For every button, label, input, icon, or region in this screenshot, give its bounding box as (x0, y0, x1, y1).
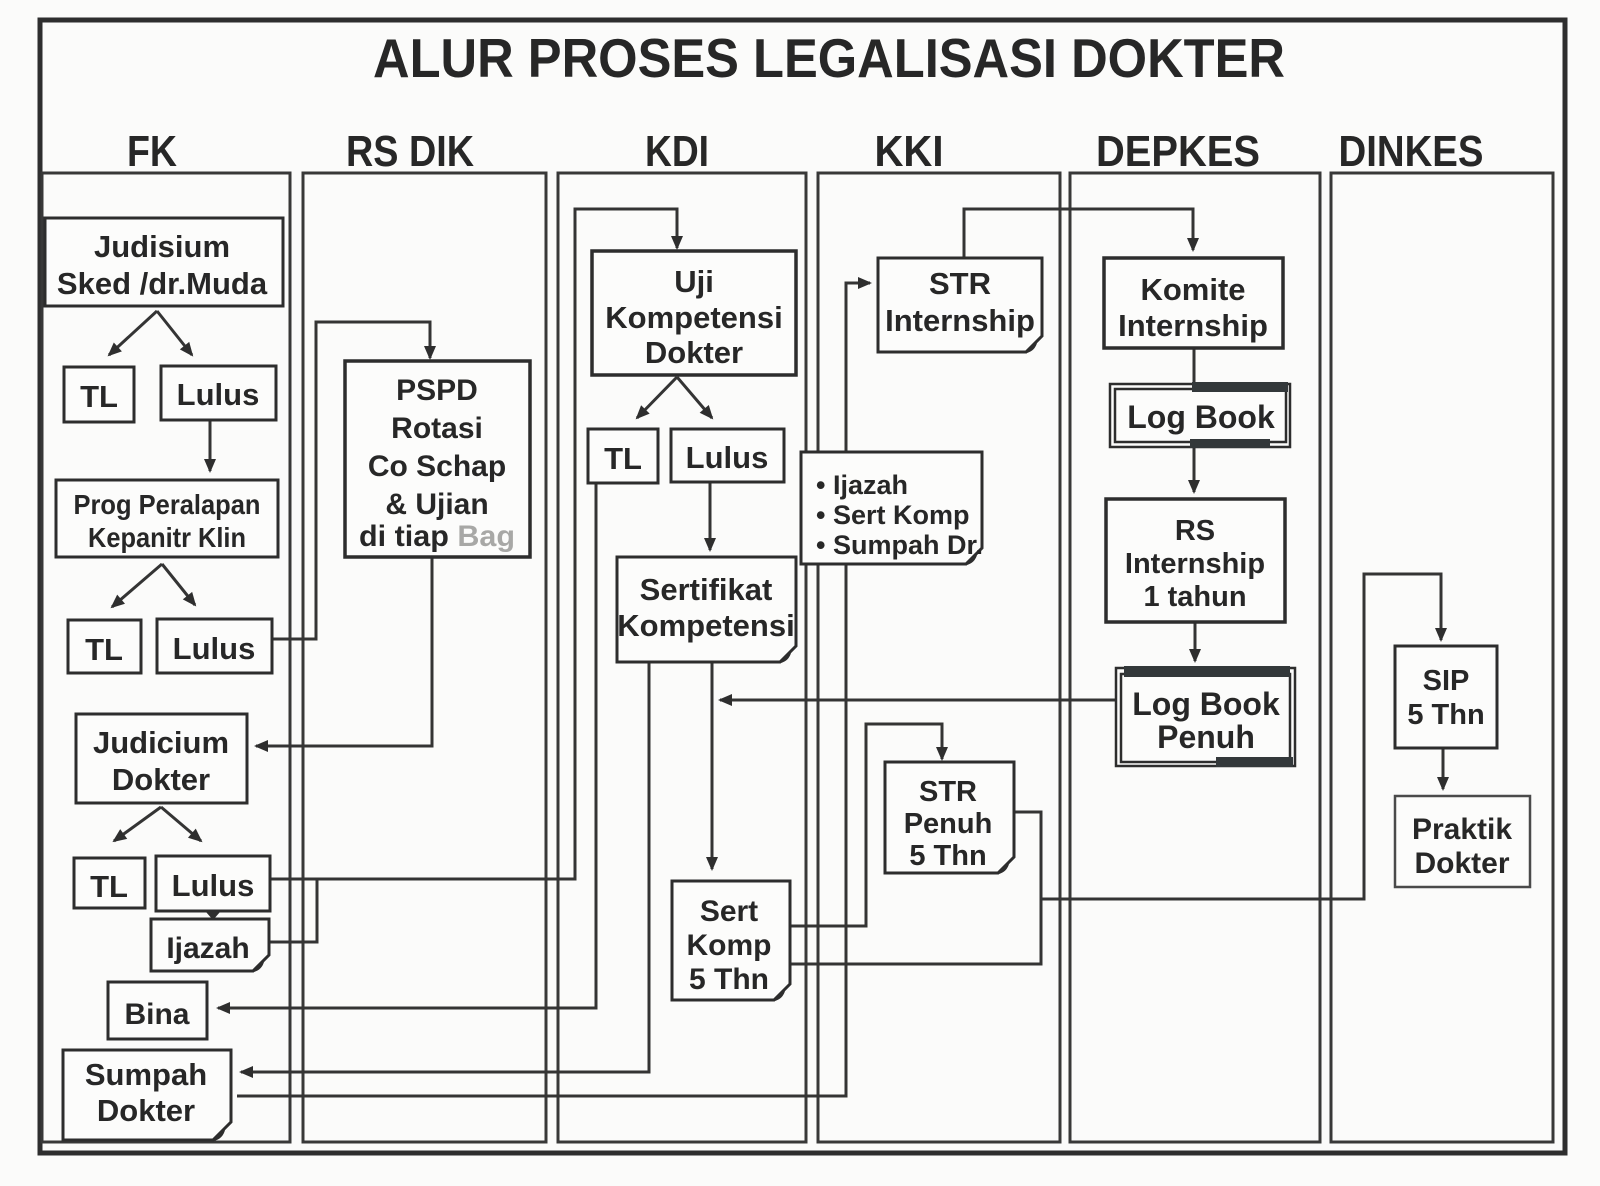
svg-text:Judisium: Judisium (94, 229, 230, 264)
svg-text:Prog Peralapan: Prog Peralapan (74, 489, 261, 520)
svg-text:Komite: Komite (1140, 272, 1245, 307)
svg-text:Kepanitr Klin: Kepanitr Klin (88, 522, 246, 553)
svg-text:Lulus: Lulus (686, 440, 769, 475)
svg-text:Sertifikat: Sertifikat (640, 572, 773, 607)
svg-text:TL: TL (90, 869, 128, 904)
svg-text:TL: TL (604, 441, 642, 476)
svg-text:Lulus: Lulus (173, 631, 256, 666)
svg-text:1 tahun: 1 tahun (1143, 581, 1246, 613)
svg-text:DEPKES: DEPKES (1096, 127, 1260, 176)
svg-text:di tiap Bag: di tiap Bag (359, 520, 515, 553)
svg-text:Kompetensi: Kompetensi (617, 608, 794, 643)
svg-text:• Sert Komp: • Sert Komp (816, 500, 969, 530)
svg-text:Kompetensi: Kompetensi (605, 300, 782, 335)
svg-text:Rotasi: Rotasi (391, 412, 483, 445)
svg-text:Penuh: Penuh (904, 808, 993, 840)
svg-text:Internship: Internship (1125, 548, 1265, 580)
svg-text:FK: FK (127, 127, 177, 176)
svg-text:Dokter: Dokter (1414, 847, 1509, 880)
svg-text:Sumpah: Sumpah (85, 1057, 207, 1092)
svg-text:Lulus: Lulus (172, 868, 255, 903)
svg-text:TL: TL (85, 632, 123, 667)
svg-text:Sked /dr.Muda: Sked /dr.Muda (57, 266, 268, 301)
svg-text:5 Thn: 5 Thn (1407, 699, 1484, 731)
svg-text:Dokter: Dokter (645, 335, 743, 370)
svg-text:RS DIK: RS DIK (346, 127, 474, 176)
svg-text:5 Thn: 5 Thn (689, 963, 769, 996)
svg-text:STR: STR (929, 266, 991, 301)
svg-text:PSPD: PSPD (396, 374, 478, 407)
svg-text:Dokter: Dokter (112, 762, 210, 797)
svg-text:Log Book: Log Book (1132, 686, 1280, 722)
svg-text:Log Book: Log Book (1127, 399, 1275, 435)
svg-text:Internship: Internship (885, 303, 1035, 338)
svg-text:Komp: Komp (687, 929, 772, 962)
svg-text:ALUR PROSES LEGALISASI DOKTER: ALUR PROSES LEGALISASI DOKTER (373, 27, 1285, 89)
svg-text:Uji: Uji (674, 264, 714, 299)
svg-text:KDI: KDI (645, 127, 709, 176)
svg-text:KKI: KKI (875, 127, 944, 176)
svg-text:• Ijazah: • Ijazah (816, 470, 908, 500)
svg-text:Penuh: Penuh (1157, 719, 1255, 755)
svg-text:Praktik: Praktik (1412, 813, 1512, 846)
svg-text:Bina: Bina (124, 998, 189, 1031)
svg-text:5 Thn: 5 Thn (909, 840, 986, 872)
svg-text:STR: STR (919, 776, 977, 808)
svg-text:Ijazah: Ijazah (166, 932, 249, 965)
svg-text:TL: TL (80, 379, 118, 414)
svg-text:Dokter: Dokter (97, 1093, 195, 1128)
svg-text:Lulus: Lulus (177, 377, 260, 412)
svg-text:Judicium: Judicium (93, 725, 229, 760)
svg-text:& Ujian: & Ujian (385, 488, 488, 521)
svg-text:• Sumpah Dr.: • Sumpah Dr. (816, 530, 983, 560)
svg-text:Internship: Internship (1118, 308, 1268, 343)
svg-text:DINKES: DINKES (1339, 127, 1484, 176)
svg-text:RS: RS (1175, 515, 1215, 547)
svg-text:SIP: SIP (1423, 665, 1470, 697)
svg-text:Sert: Sert (700, 895, 758, 928)
svg-text:Co Schap: Co Schap (368, 450, 506, 483)
